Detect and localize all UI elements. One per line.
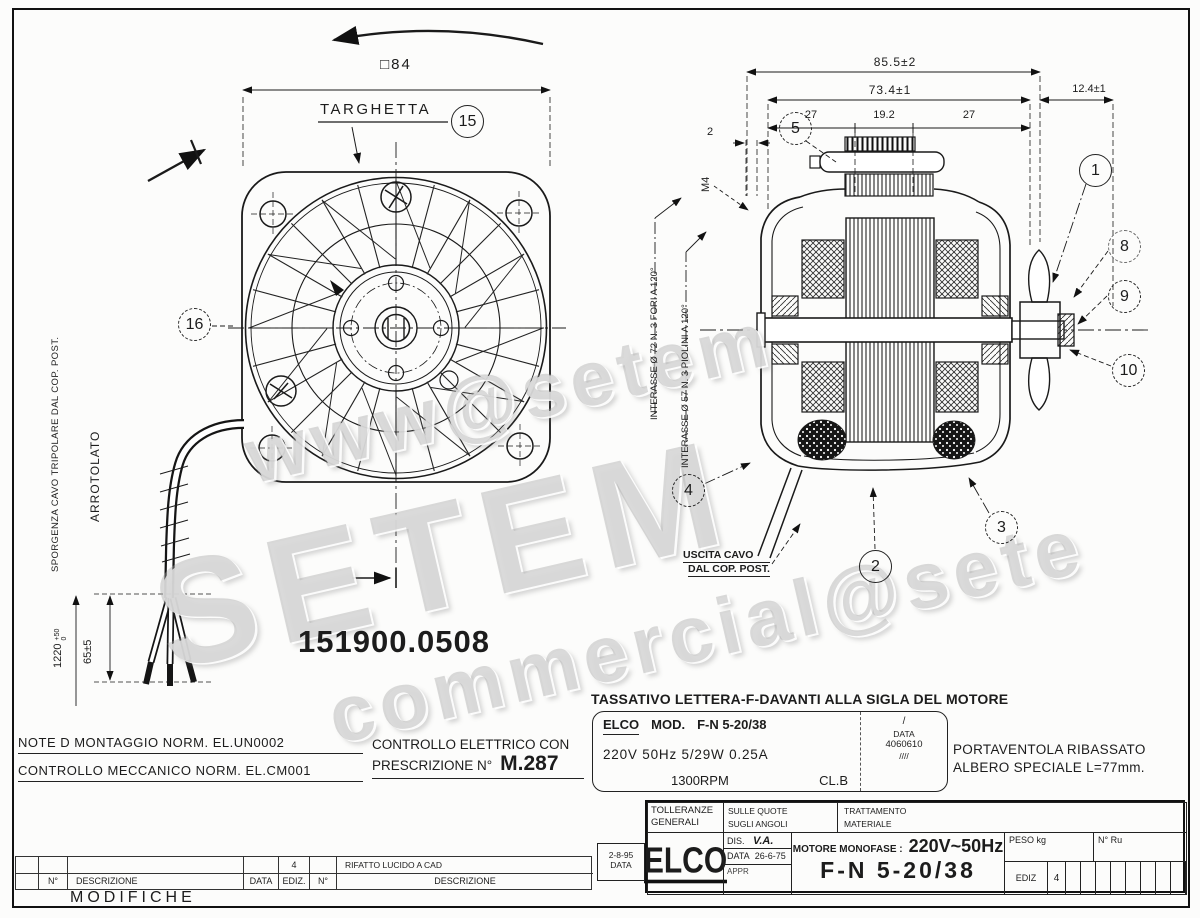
- tassativo-note: TASSATIVO LETTERA-F-DAVANTI ALLA SIGLA D…: [591, 691, 1008, 707]
- dim-body: 73.4±1: [840, 83, 940, 97]
- revision-date-cell: 2-8-95 DATA: [597, 843, 645, 881]
- cable-tol-plus: +50: [54, 629, 61, 641]
- nameplate-data-label: DATA: [861, 729, 947, 740]
- cable-tol-minus: 0: [61, 629, 68, 641]
- rev-date-value: 2-8-95: [598, 850, 644, 860]
- revision-strip: 4 RIFATTO LUCIDO A CAD N° DESCRIZIONE DA…: [15, 856, 592, 890]
- appr-label: APPR: [724, 865, 791, 878]
- trattamento-materiale-cell: TRATTAMENTO MATERIALE: [837, 802, 1187, 833]
- elco-logo: ELCO: [644, 844, 727, 884]
- dis-label: DIS.: [727, 836, 745, 846]
- part-number: 151900.0508: [298, 624, 490, 660]
- nameplate-slash: /: [861, 716, 947, 729]
- uscita-line1: USCITA CAVO: [683, 549, 770, 563]
- elettrico-line2: PRESCRIZIONE N°: [372, 758, 492, 773]
- motore-label: MOTORE MONOFASE :: [793, 844, 903, 855]
- dim-seg-mid: 19.2: [861, 109, 907, 121]
- elettrico-value: M.287: [500, 752, 558, 776]
- tb-data-label: DATA: [727, 851, 749, 861]
- callout-15: 15: [451, 105, 484, 138]
- callout-4: 4: [672, 474, 705, 507]
- callout-16: 16: [178, 308, 211, 341]
- motor-title-cell: MOTORE MONOFASE : 220V~50Hz F-N 5-20/38: [791, 832, 1005, 895]
- dim-flange-square: □84: [346, 56, 446, 73]
- portaventola-line1: PORTAVENTOLA RIBASSATO: [953, 741, 1146, 759]
- section-view-drawing: [655, 72, 1148, 564]
- uscita-line2: DAL COP. POST.: [688, 563, 770, 577]
- dis-data-cell: DIS. V.A. DATA 26-6-75 APPR: [723, 832, 792, 895]
- dim-shaft-end: 12.4±1: [1058, 83, 1120, 95]
- tb-data-value: 26-6-75: [755, 851, 786, 861]
- thread-label-m4: M4: [700, 177, 712, 192]
- col-desc2: DESCRIZIONE: [337, 874, 593, 890]
- col-ediz: EDIZ.: [279, 874, 310, 890]
- cable-length-value: 1220: [52, 644, 64, 668]
- nameplate-brand: ELCO: [603, 717, 639, 735]
- nameplate-rpm: 1300RPM: [671, 773, 729, 788]
- col-desc1: DESCRIZIONE: [68, 874, 244, 890]
- nameplate-class: CL.B: [819, 773, 848, 788]
- dim-strip-length: 65±5: [82, 640, 94, 664]
- ediz-label-cell: EDIZ: [1004, 861, 1048, 895]
- entry-description: RIFATTO LUCIDO A CAD: [337, 857, 593, 874]
- col-n2: N°: [310, 874, 337, 890]
- callout-9: 9: [1108, 280, 1141, 313]
- callout-10: 10: [1112, 354, 1145, 387]
- nru-cell: N° Ru: [1093, 832, 1187, 862]
- modifiche-footer: MODIFICHE: [70, 889, 196, 907]
- dim-seg-right: 27: [949, 109, 989, 121]
- nameplate-box: ELCO MOD. F-N 5-20/38 220V 50Hz 5/29W 0.…: [592, 711, 948, 792]
- rev-date-label: DATA: [598, 860, 644, 870]
- motore-value: 220V~50Hz: [909, 836, 1004, 857]
- dim-cable-length: 1220+500: [52, 629, 68, 668]
- nameplate-strokes: ////: [861, 751, 947, 762]
- portaventola-line2: ALBERO SPECIALE L=77mm.: [953, 759, 1146, 777]
- callout-2: 2: [859, 550, 892, 583]
- col-n1: N°: [39, 874, 68, 890]
- peso-cell: PESO kg: [1004, 832, 1094, 862]
- uscita-cavo-note: USCITA CAVO DAL COP. POST.: [683, 549, 770, 577]
- callout-8: 8: [1108, 230, 1141, 263]
- entry-ediz-value: 4: [279, 857, 310, 874]
- quote-angoli-cell: SULLE QUOTE SUGLI ANGOLI: [723, 802, 838, 833]
- callout-5: 5: [779, 112, 812, 145]
- sugli-angoli-label: SUGLI ANGOLI: [728, 818, 833, 831]
- sporgenza-note: SPORGENZA CAVO TRIPOLARE DAL COP. POST.: [50, 337, 61, 572]
- dim-overall: 85.5±2: [845, 55, 945, 69]
- portaventola-note: PORTAVENTOLA RIBASSATO ALBERO SPECIALE L…: [953, 741, 1146, 777]
- nameplate-data-value: 4060610: [861, 739, 947, 751]
- tolleranze-line1: TOLLERANZE: [651, 805, 720, 817]
- nameplate-electrical: 220V 50Hz 5/29W 0.25A: [603, 747, 852, 762]
- ediz-tick-cells: [1065, 861, 1187, 895]
- elettrico-note: CONTROLLO ELETTRICO CON PRESCRIZIONE N° …: [372, 737, 584, 779]
- materiale-label: MATERIALE: [844, 818, 1180, 831]
- callout-3: 3: [985, 511, 1018, 544]
- interasse-piolini-note: INTERASSE Ø 57 N. 3 PIOLINI A 120°: [680, 304, 691, 468]
- meccanico-note: CONTROLLO MECCANICO NORM. EL.CM001: [18, 763, 363, 782]
- trattamento-label: TRATTAMENTO: [844, 805, 1180, 818]
- ediz-value-cell: 4: [1047, 861, 1066, 895]
- nameplate-mod-label: MOD.: [651, 717, 685, 732]
- elettrico-line1: CONTROLLO ELETTRICO CON: [372, 737, 584, 752]
- montaggio-note: NOTE D MONTAGGIO NORM. EL.UN0002: [18, 735, 363, 754]
- dim-plate: 2: [707, 126, 713, 138]
- targhetta-label: TARGHETTA: [320, 101, 431, 118]
- model-number: F-N 5-20/38: [792, 857, 1004, 884]
- col-data: DATA: [244, 874, 279, 890]
- tolleranze-line2: GENERALI: [651, 817, 720, 829]
- drawing-sheet: www@setem SETEM commercial@sete □84 TARG…: [0, 0, 1200, 918]
- callout-1: 1: [1079, 154, 1112, 187]
- title-block: TOLLERANZE GENERALI SULLE QUOTE SUGLI AN…: [645, 800, 1185, 893]
- arrotolato-note: ARROTOLATO: [88, 431, 102, 522]
- dis-value: V.A.: [753, 835, 773, 847]
- logo-cell: ELCO: [647, 832, 724, 895]
- sulle-quote-label: SULLE QUOTE: [728, 805, 833, 818]
- interasse-fori-note: INTERASSE Ø 72 N. 3 FORI A 120°: [649, 267, 660, 420]
- nameplate-mod-value: F-N 5-20/38: [697, 717, 766, 732]
- tolleranze-cell: TOLLERANZE GENERALI: [647, 802, 724, 833]
